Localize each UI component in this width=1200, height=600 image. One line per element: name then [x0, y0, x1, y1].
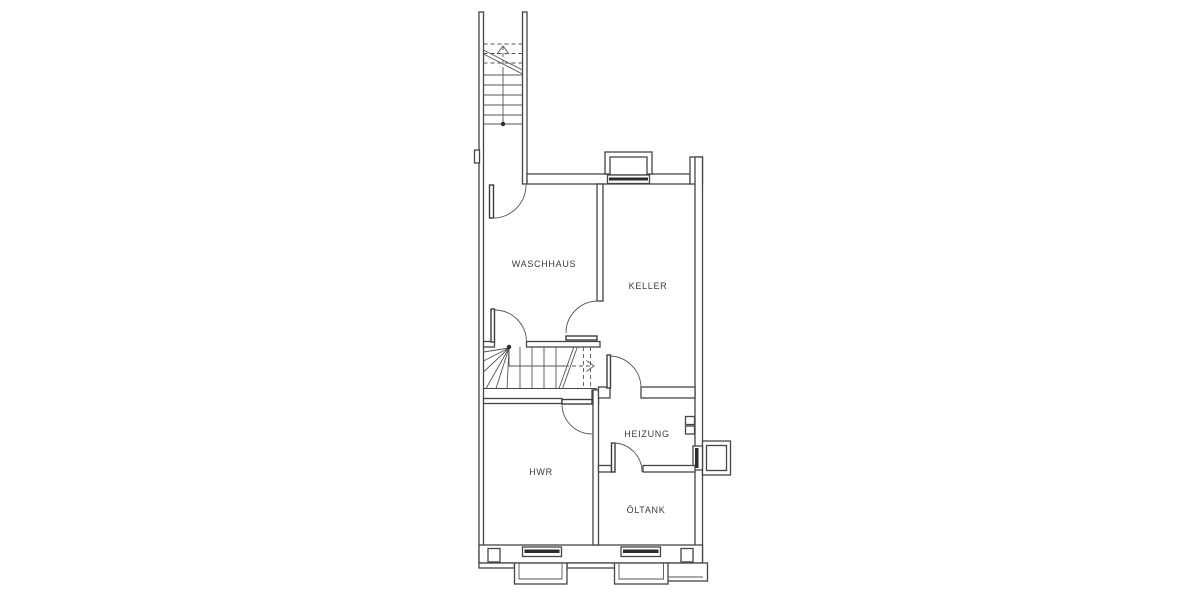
room-label-keller: KELLER: [629, 281, 668, 291]
room-label-waschhaus: WASCHHAUS: [512, 259, 576, 269]
window-top-icon: [608, 175, 650, 184]
heizung-door-swing-icon: [607, 355, 641, 388]
room-label-hwr: HWR: [529, 467, 553, 477]
floor-plan-canvas: WASCHHAUS KELLER HEIZUNG HWR ÖLTANK: [0, 0, 1200, 600]
waschhaus-door-swing-icon: [491, 309, 527, 342]
room-label-oeltank: ÖLTANK: [627, 505, 666, 515]
floor-plan-drawing: WASCHHAUS KELLER HEIZUNG HWR ÖLTANK: [0, 0, 1200, 600]
waschhaus-entry-door-swing-icon: [490, 185, 527, 218]
window-bottom-right-icon: [621, 547, 661, 557]
light-well-bottom-right: [615, 563, 669, 584]
wall-mounted-box-icon: [686, 417, 695, 435]
interior-winder-staircase-icon: [484, 345, 595, 389]
oeltank-door-swing-icon: [612, 443, 643, 472]
window-bottom-left-icon: [523, 547, 562, 557]
room-label-heizung: HEIZUNG: [624, 429, 669, 439]
light-well-right: [703, 441, 731, 475]
exterior-walls: [475, 12, 708, 581]
light-well-bottom-left: [515, 563, 568, 584]
exterior-staircase-icon: [484, 44, 523, 126]
keller-door-swing-icon: [566, 301, 598, 340]
interior-walls: [484, 184, 696, 545]
hwr-door-swing-icon: [562, 400, 592, 435]
